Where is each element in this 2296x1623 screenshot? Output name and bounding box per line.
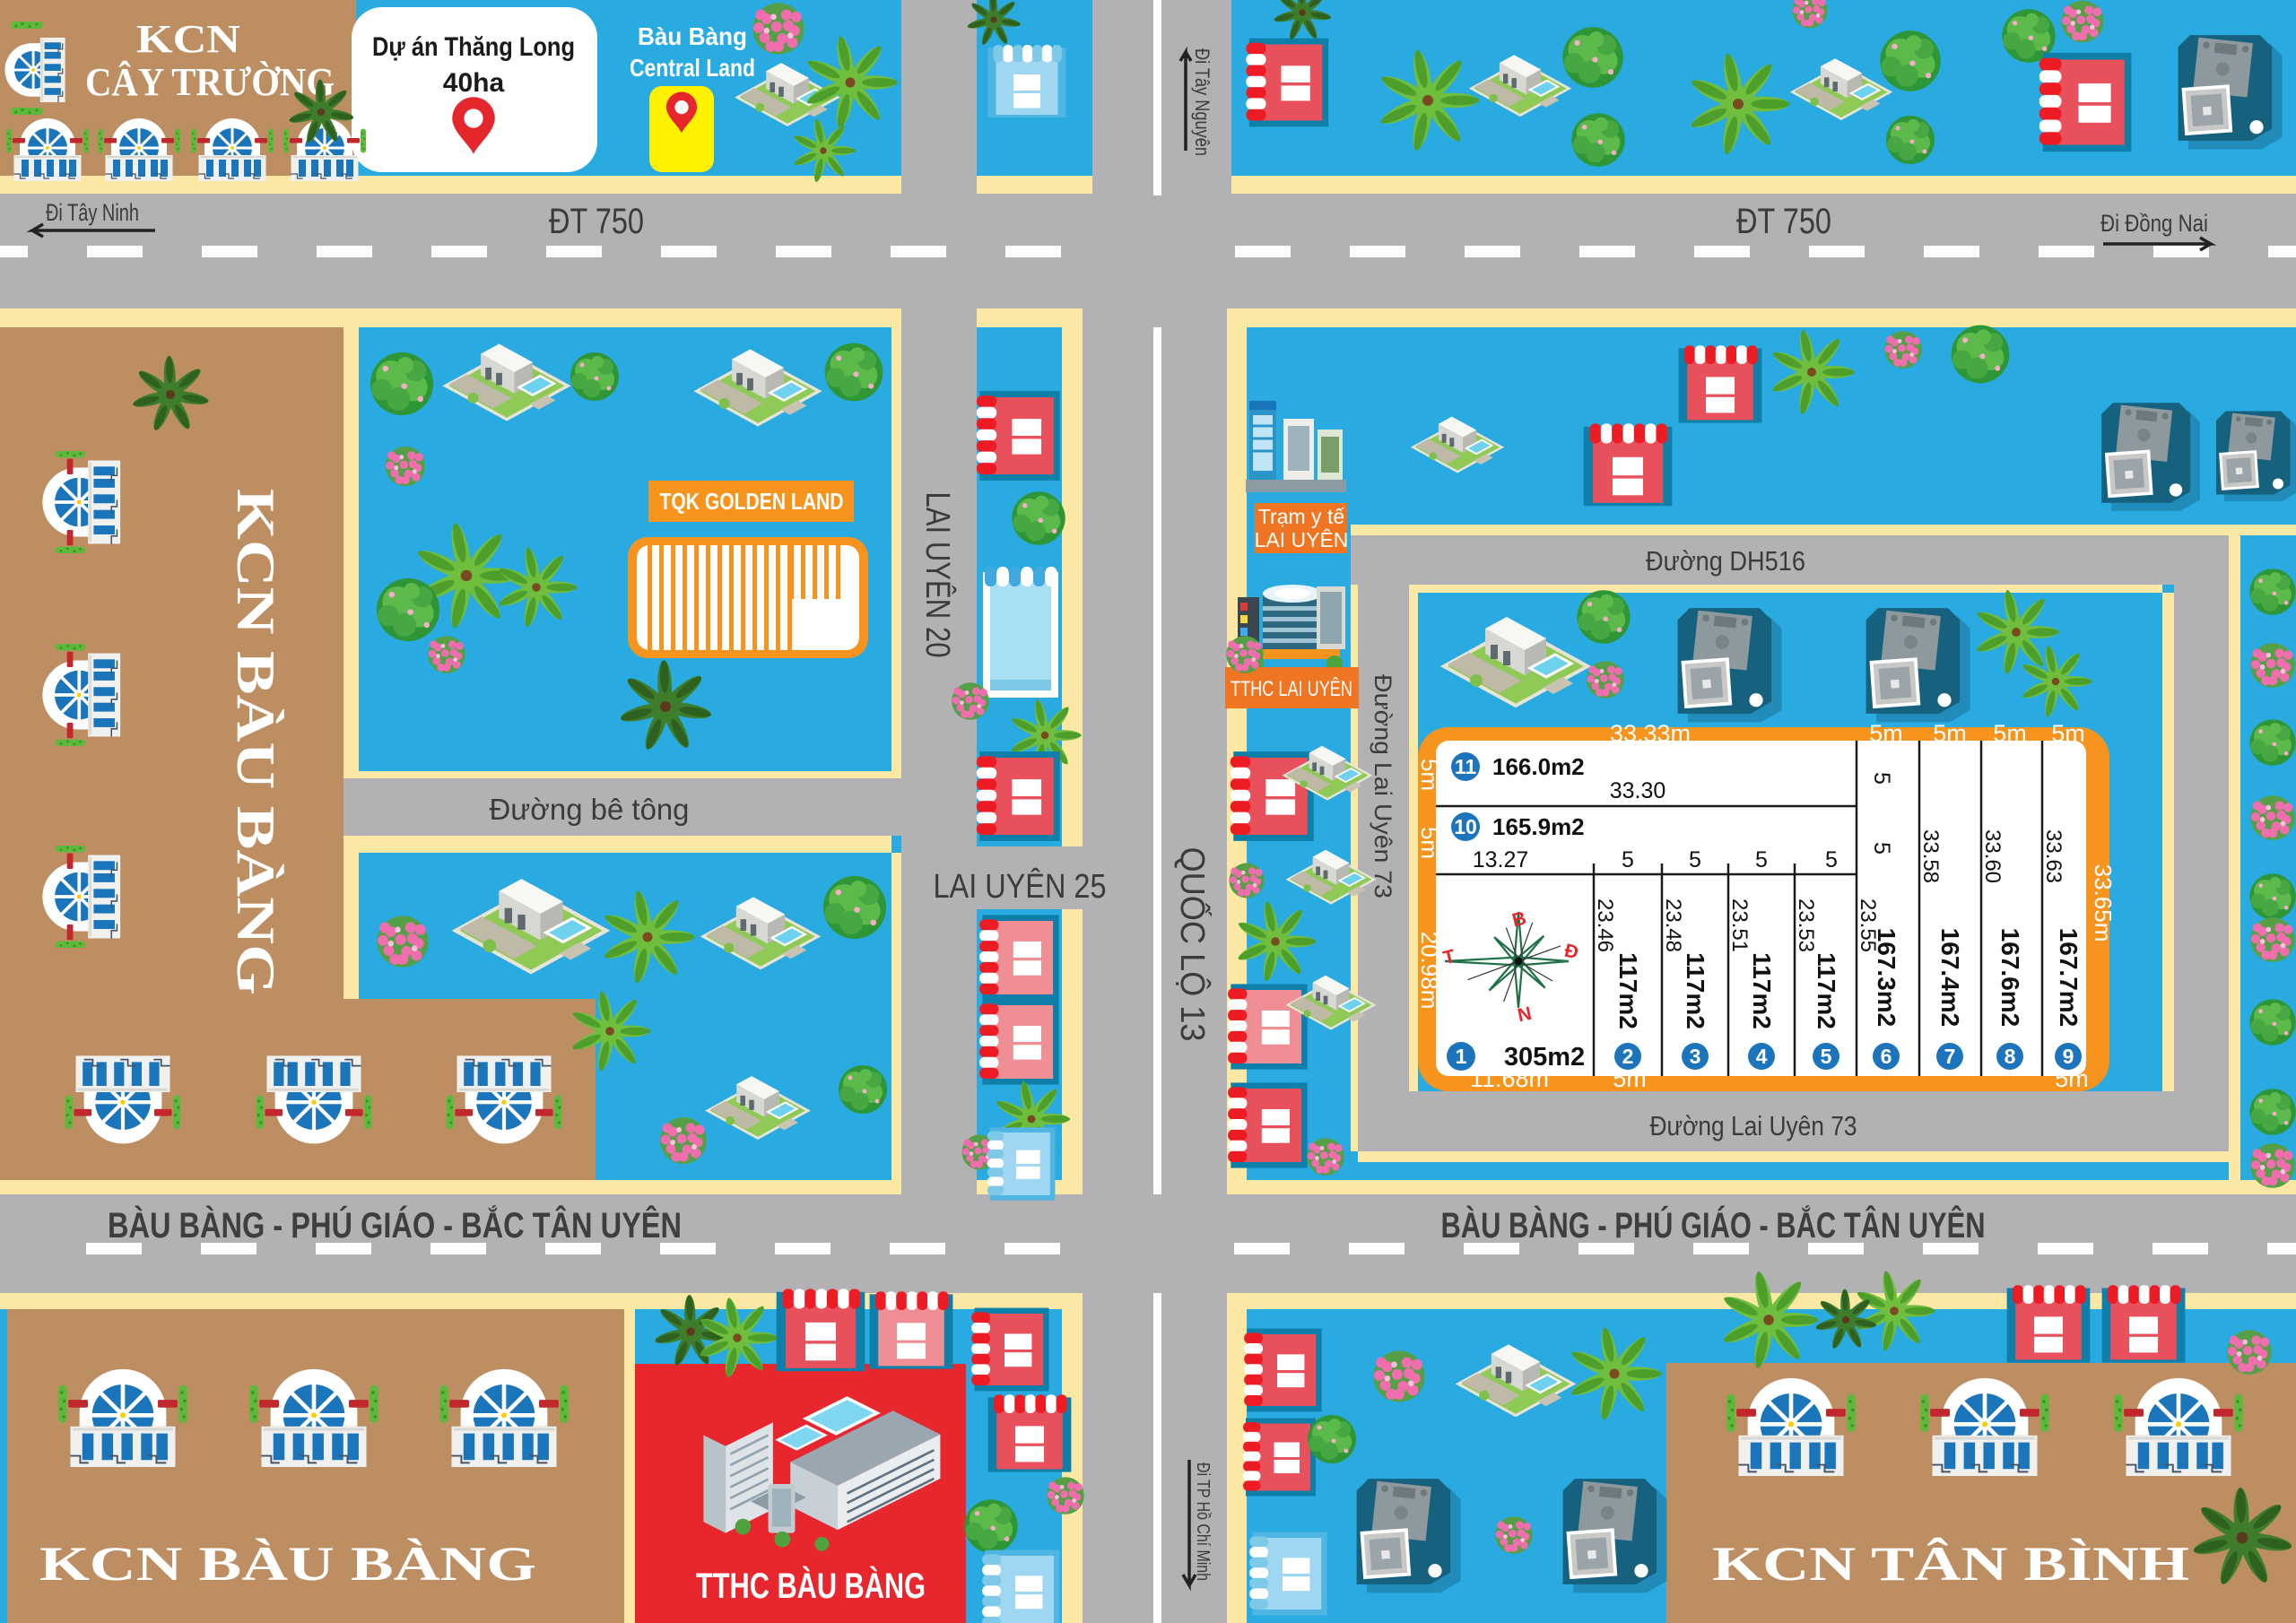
svg-text:ĐT 750: ĐT 750 bbox=[1736, 202, 1831, 241]
svg-text:5: 5 bbox=[1755, 847, 1768, 872]
svg-text:KCN TÂN BÌNH: KCN TÂN BÌNH bbox=[1712, 1537, 2189, 1591]
svg-text:TTHC BÀU BÀNG: TTHC BÀU BÀNG bbox=[696, 1566, 926, 1606]
svg-text:5: 5 bbox=[1821, 1045, 1832, 1068]
svg-text:1: 1 bbox=[1456, 1045, 1467, 1068]
svg-text:Đường Lai Uyên 73: Đường Lai Uyên 73 bbox=[1370, 674, 1396, 898]
svg-text:KCN BÀU BÀNG: KCN BÀU BÀNG bbox=[39, 1537, 536, 1591]
svg-text:167.3m2: 167.3m2 bbox=[1873, 928, 1900, 1028]
svg-text:23.51: 23.51 bbox=[1727, 898, 1752, 952]
svg-text:20.98m: 20.98m bbox=[1416, 932, 1443, 1010]
svg-text:165.9m2: 165.9m2 bbox=[1492, 813, 1585, 840]
svg-text:KCN BÀU BÀNG: KCN BÀU BÀNG bbox=[226, 489, 285, 995]
svg-text:6: 6 bbox=[1881, 1045, 1892, 1068]
svg-text:33.63: 33.63 bbox=[2041, 829, 2066, 883]
svg-text:LAI UYÊN 20: LAI UYÊN 20 bbox=[918, 492, 957, 658]
svg-text:TQK GOLDEN LAND: TQK GOLDEN LAND bbox=[660, 488, 844, 515]
svg-text:23.46: 23.46 bbox=[1593, 898, 1617, 952]
svg-text:KCN: KCN bbox=[136, 17, 240, 61]
svg-text:Đi Đồng Nai: Đi Đồng Nai bbox=[2100, 210, 2208, 237]
svg-text:Đi Tây Nguyên: Đi Tây Nguyên bbox=[1191, 48, 1213, 156]
svg-text:117m2: 117m2 bbox=[1748, 952, 1776, 1029]
svg-text:QUỐC LỘ 13: QUỐC LỘ 13 bbox=[1173, 847, 1213, 1042]
svg-text:5: 5 bbox=[1869, 842, 1894, 855]
svg-text:33.60: 33.60 bbox=[1980, 829, 2005, 883]
svg-text:Đường bê tông: Đường bê tông bbox=[490, 793, 690, 826]
svg-text:5m: 5m bbox=[1416, 759, 1443, 791]
svg-text:5: 5 bbox=[1869, 772, 1894, 785]
svg-text:Bàu Bàng: Bàu Bàng bbox=[638, 22, 747, 50]
svg-text:117m2: 117m2 bbox=[1813, 952, 1840, 1029]
svg-text:11.68m: 11.68m bbox=[1470, 1065, 1549, 1092]
svg-text:117m2: 117m2 bbox=[1682, 952, 1709, 1029]
svg-text:10: 10 bbox=[1454, 815, 1477, 838]
svg-text:5m: 5m bbox=[1613, 1065, 1647, 1092]
svg-text:TTHC LAI UYÊN: TTHC LAI UYÊN bbox=[1231, 677, 1352, 701]
svg-text:Central Land: Central Land bbox=[630, 54, 755, 82]
svg-text:5: 5 bbox=[1689, 847, 1701, 872]
svg-text:Đường Lai Uyên 73: Đường Lai Uyên 73 bbox=[1650, 1110, 1857, 1141]
svg-text:5m: 5m bbox=[1933, 720, 1967, 747]
svg-text:Đường DH516: Đường DH516 bbox=[1646, 545, 1805, 577]
svg-text:33.30: 33.30 bbox=[1610, 778, 1666, 803]
svg-text:Trạm y tế: Trạm y tế bbox=[1258, 505, 1344, 528]
svg-text:33.33m: 33.33m bbox=[1610, 720, 1691, 747]
svg-text:23.53: 23.53 bbox=[1794, 898, 1818, 952]
svg-text:3: 3 bbox=[1690, 1045, 1701, 1068]
svg-text:40ha: 40ha bbox=[443, 68, 505, 98]
svg-text:5m: 5m bbox=[1993, 720, 2027, 747]
svg-text:7: 7 bbox=[1944, 1045, 1956, 1068]
svg-text:5m: 5m bbox=[2055, 1065, 2089, 1092]
svg-text:5: 5 bbox=[1825, 847, 1838, 872]
svg-text:5: 5 bbox=[1622, 847, 1634, 872]
svg-text:33.65m: 33.65m bbox=[2090, 864, 2117, 942]
svg-text:LAI UYÊN 25: LAI UYÊN 25 bbox=[934, 867, 1107, 906]
svg-text:166.0m2: 166.0m2 bbox=[1492, 753, 1585, 780]
svg-text:167.6m2: 167.6m2 bbox=[1996, 928, 2024, 1028]
svg-text:167.4m2: 167.4m2 bbox=[1936, 928, 1964, 1028]
svg-text:13.27: 13.27 bbox=[1473, 847, 1529, 872]
svg-text:33.58: 33.58 bbox=[1918, 829, 1943, 883]
svg-text:Dự án Thăng Long: Dự án Thăng Long bbox=[372, 32, 575, 62]
svg-text:167.7m2: 167.7m2 bbox=[2055, 928, 2083, 1028]
svg-text:4: 4 bbox=[1756, 1045, 1768, 1068]
svg-text:BÀU BÀNG - PHÚ GIÁO - BẮC TÂN: BÀU BÀNG - PHÚ GIÁO - BẮC TÂN UYÊN bbox=[1441, 1204, 1986, 1245]
svg-text:Đi Tây Ninh: Đi Tây Ninh bbox=[46, 199, 139, 226]
svg-text:5m: 5m bbox=[1416, 827, 1443, 859]
svg-text:ĐT 750: ĐT 750 bbox=[549, 202, 644, 241]
svg-text:5m: 5m bbox=[2051, 720, 2085, 747]
svg-text:8: 8 bbox=[2005, 1045, 2016, 1068]
svg-text:BÀU BÀNG - PHÚ GIÁO - BẮC TÂN: BÀU BÀNG - PHÚ GIÁO - BẮC TÂN UYÊN bbox=[108, 1204, 682, 1245]
svg-text:23.48: 23.48 bbox=[1661, 898, 1685, 952]
svg-text:Đi TP Hồ Chí Minh: Đi TP Hồ Chí Minh bbox=[1193, 1462, 1213, 1581]
svg-text:117m2: 117m2 bbox=[1614, 952, 1642, 1029]
svg-text:LAI UYÊN: LAI UYÊN bbox=[1255, 528, 1349, 551]
svg-text:5m: 5m bbox=[1869, 720, 1903, 747]
svg-text:11: 11 bbox=[1455, 755, 1477, 778]
